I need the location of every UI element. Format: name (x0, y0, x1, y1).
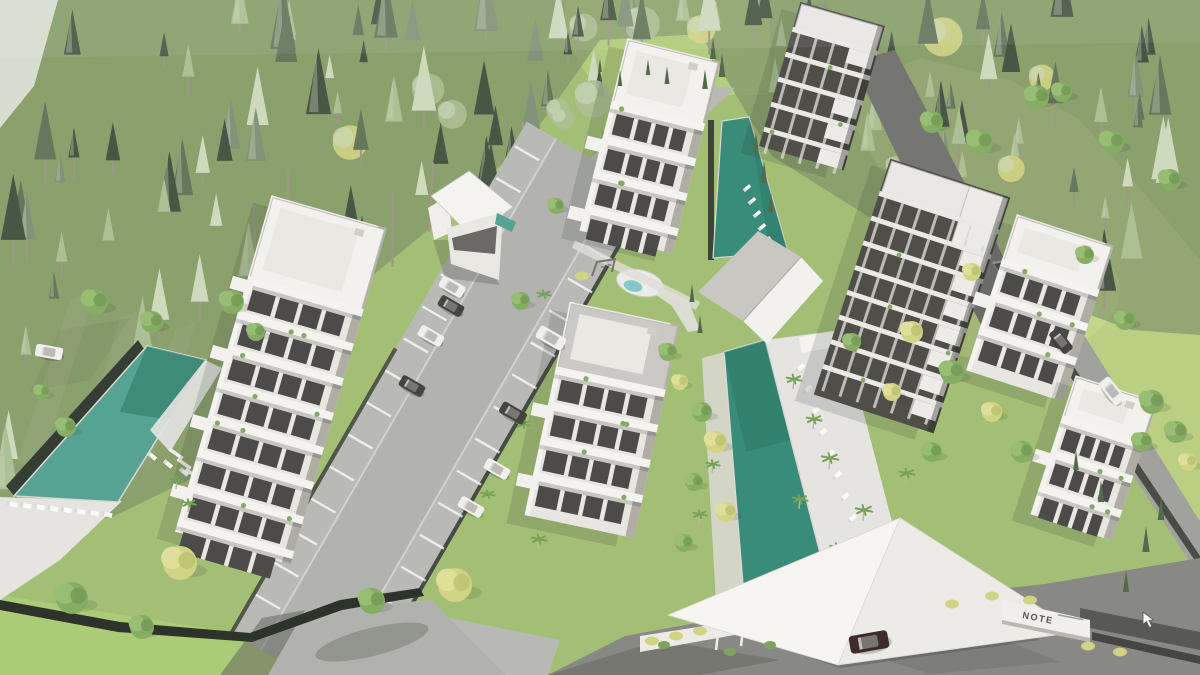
atmosphere (0, 0, 1200, 675)
white-wash (0, 0, 1200, 675)
scene-canvas: NOTE (0, 0, 1200, 675)
aerial-render: NOTE (0, 0, 1200, 675)
